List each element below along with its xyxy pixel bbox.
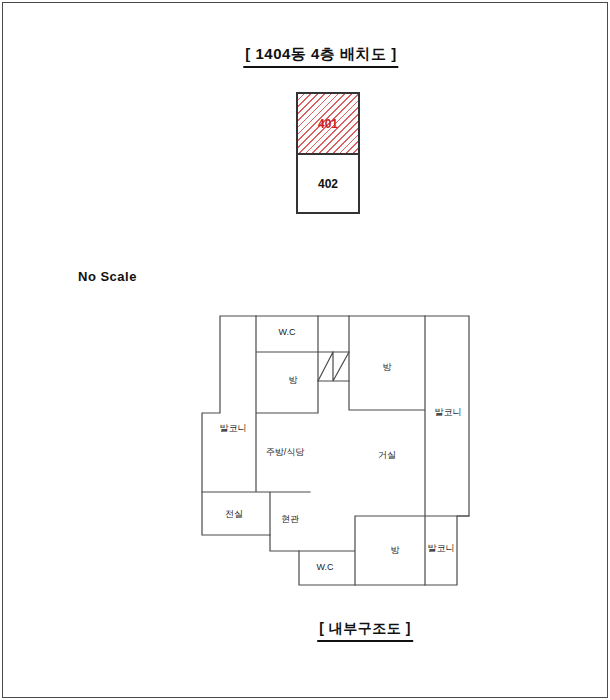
room-label-balcony-bottom: 발코니 xyxy=(428,543,455,553)
room-label-balcony-left: 발코니 xyxy=(220,423,247,433)
internal-structure-title: [ 내부구조도 ] xyxy=(317,620,413,642)
room-label-vestibule: 전실 xyxy=(225,509,243,519)
room-label-room-right: 방 xyxy=(383,362,392,372)
floor-plan: W.C 방 방 발코니 발코니 주방/식당 거실 전실 현관 방 발코니 W.C xyxy=(0,0,610,700)
room-label-wc-bottom: W.C xyxy=(317,562,334,572)
room-label-room-left: 방 xyxy=(289,375,298,385)
room-label-entrance: 현관 xyxy=(281,514,299,524)
room-label-kitchen-dining: 주방/식당 xyxy=(266,447,305,457)
room-label-living-room: 거실 xyxy=(378,450,396,460)
room-label-wc-top: W.C xyxy=(279,327,296,337)
document-page: [ 1404동 4층 배치도 ] 401 402 No Scale W.C 방 … xyxy=(0,0,610,700)
stair-hatch xyxy=(318,352,349,381)
room-label-balcony-right: 발코니 xyxy=(435,407,462,417)
room-label-room-bottom: 방 xyxy=(391,545,400,555)
